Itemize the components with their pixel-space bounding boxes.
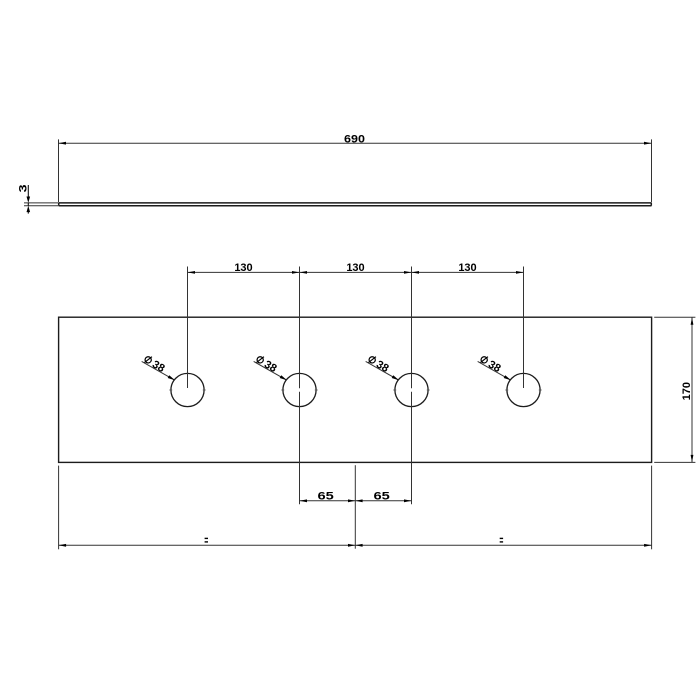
svg-text:38: 38 (374, 359, 391, 375)
svg-text:38: 38 (262, 359, 279, 375)
svg-text:3: 3 (16, 184, 29, 192)
svg-text:38: 38 (150, 359, 167, 375)
svg-text:65: 65 (373, 489, 389, 502)
svg-text:130: 130 (458, 262, 476, 274)
svg-text:38: 38 (486, 359, 503, 375)
svg-text:170: 170 (681, 382, 693, 400)
svg-text:130: 130 (234, 262, 252, 274)
svg-text:690: 690 (344, 133, 365, 145)
svg-text:130: 130 (346, 262, 364, 274)
svg-text:65: 65 (317, 489, 333, 502)
